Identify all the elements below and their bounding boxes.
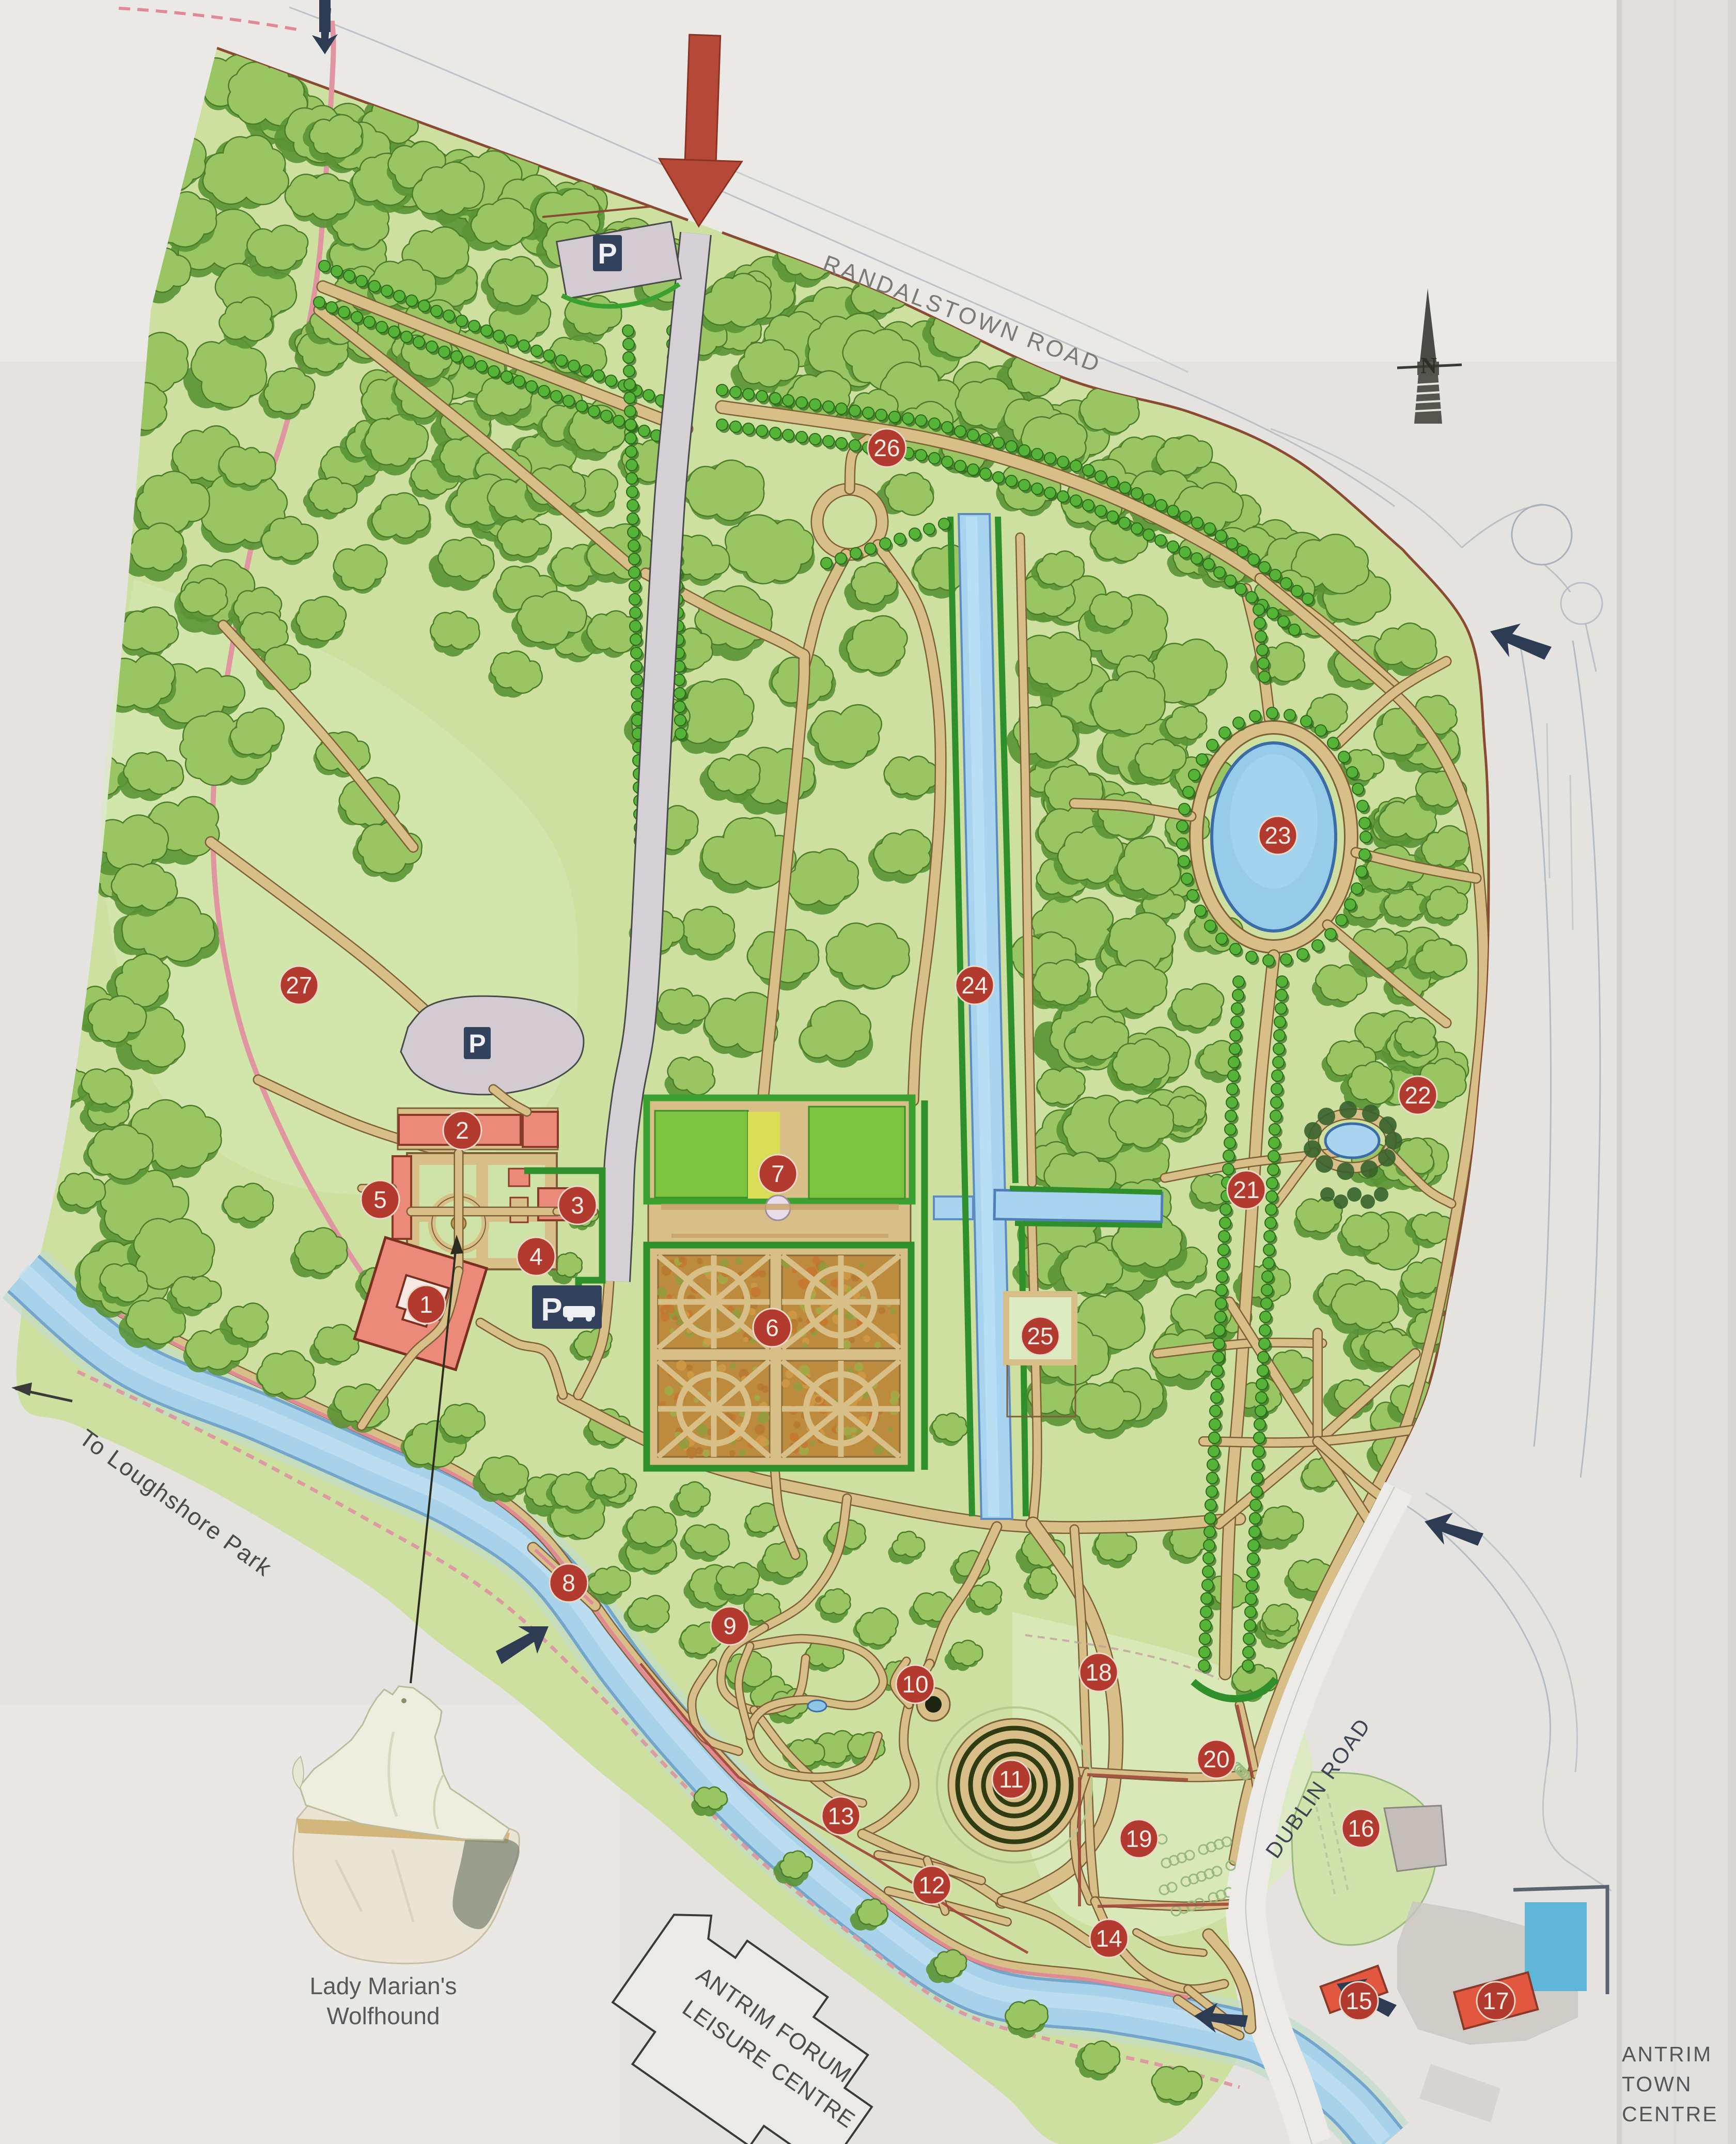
svg-text:21: 21 (1233, 1176, 1259, 1203)
svg-text:9: 9 (723, 1612, 737, 1639)
svg-text:22: 22 (1404, 1082, 1431, 1109)
svg-text:CENTRE: CENTRE (1622, 2102, 1718, 2126)
svg-text:N: N (1420, 353, 1437, 378)
svg-text:Wolfhound: Wolfhound (326, 2002, 440, 2029)
svg-text:18: 18 (1085, 1659, 1112, 1686)
svg-text:6: 6 (765, 1314, 779, 1341)
svg-text:TOWN: TOWN (1622, 2072, 1693, 2096)
svg-text:16: 16 (1348, 1815, 1374, 1842)
svg-text:P: P (541, 1292, 562, 1328)
svg-text:15: 15 (1346, 1987, 1372, 2014)
svg-text:25: 25 (1027, 1323, 1053, 1349)
svg-text:3: 3 (571, 1192, 584, 1219)
svg-text:1: 1 (419, 1291, 433, 1318)
svg-text:11: 11 (999, 1766, 1024, 1793)
svg-text:2: 2 (456, 1117, 469, 1144)
svg-text:8: 8 (562, 1570, 575, 1596)
svg-text:14: 14 (1096, 1925, 1122, 1952)
svg-text:ANTRIM: ANTRIM (1622, 2042, 1712, 2066)
svg-text:7: 7 (771, 1160, 785, 1187)
svg-text:10: 10 (902, 1671, 928, 1698)
svg-text:27: 27 (286, 972, 312, 999)
svg-text:12: 12 (918, 1872, 945, 1899)
svg-text:19: 19 (1125, 1825, 1152, 1852)
svg-text:13: 13 (827, 1803, 854, 1829)
svg-text:P: P (598, 237, 617, 270)
svg-text:24: 24 (961, 972, 988, 999)
svg-text:P: P (468, 1029, 486, 1058)
svg-text:Lady Marian's: Lady Marian's (310, 1972, 457, 1999)
svg-text:4: 4 (529, 1243, 543, 1270)
svg-text:23: 23 (1264, 822, 1291, 849)
svg-text:20: 20 (1203, 1746, 1229, 1773)
svg-text:5: 5 (373, 1186, 387, 1213)
svg-text:26: 26 (873, 434, 900, 461)
svg-text:17: 17 (1482, 1987, 1509, 2014)
